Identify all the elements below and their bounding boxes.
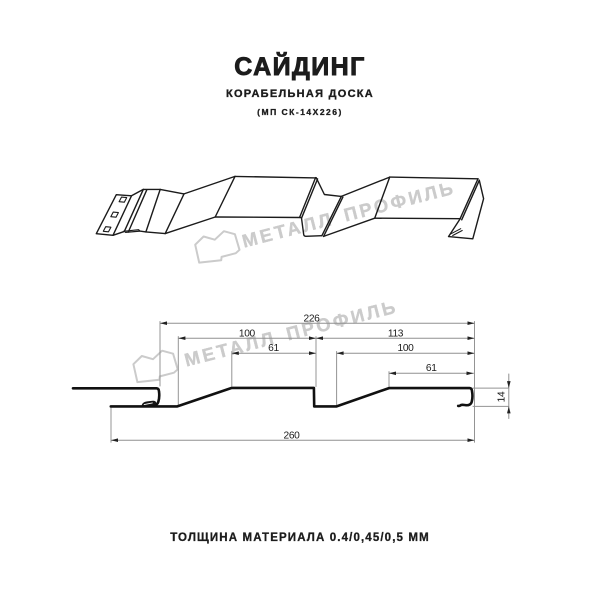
svg-text:61: 61 [268,343,279,354]
svg-text:14: 14 [496,391,507,402]
svg-text:226: 226 [304,313,321,324]
svg-text:113: 113 [388,329,404,340]
svg-text:МЕТАЛЛ ПРОФИЛЬ: МЕТАЛЛ ПРОФИЛЬ [240,177,458,252]
svg-text:61: 61 [426,363,437,374]
svg-text:100: 100 [239,329,256,340]
svg-text:260: 260 [284,430,301,441]
svg-text:МЕТАЛЛ ПРОФИЛЬ: МЕТАЛЛ ПРОФИЛЬ [182,296,400,371]
svg-text:100: 100 [398,343,415,354]
